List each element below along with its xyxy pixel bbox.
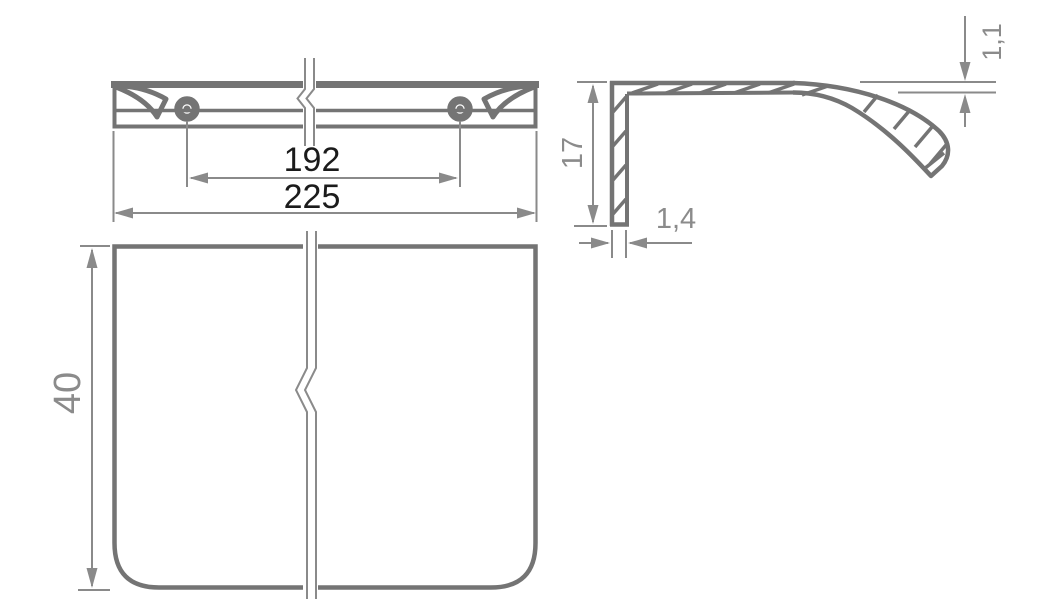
front-view: 40	[47, 231, 536, 599]
dim-label-192: 192	[284, 141, 341, 179]
top-view: 192 225	[111, 58, 539, 222]
dim-label-1-1: 1,1	[977, 23, 1007, 61]
break-line-top-view	[298, 58, 315, 146]
curled-lip	[793, 83, 948, 176]
arrowhead-up	[960, 94, 971, 113]
arrowhead-right	[591, 238, 610, 249]
arrowhead-down	[588, 205, 599, 224]
technical-drawing-page: 192 225	[0, 0, 1040, 599]
right-end-flap	[484, 86, 534, 117]
break-line-front-view	[296, 231, 316, 599]
arrowhead-up	[87, 248, 98, 268]
dimension-front-height: 40	[47, 246, 110, 590]
hatching-vertical-leg	[613, 97, 626, 214]
front-outline	[115, 247, 536, 588]
arrowhead-right	[439, 173, 458, 184]
screw-hole-right	[451, 100, 469, 118]
dimension-lip-thickness: 1,1	[860, 16, 1007, 127]
arrowhead-left	[114, 208, 133, 219]
dim-label-1-4: 1,4	[656, 203, 696, 235]
technical-drawing-canvas: 192 225	[0, 0, 1040, 599]
dimension-profile-height: 17	[557, 82, 607, 226]
arrowhead-up	[588, 84, 599, 103]
arrowhead-right	[517, 208, 536, 219]
arrowhead-left	[628, 238, 647, 249]
arrowhead-left	[189, 173, 208, 184]
dim-label-17: 17	[557, 137, 589, 169]
arrowhead-down	[87, 568, 98, 588]
side-section-view: 17 1,4 1,1	[557, 16, 1007, 258]
left-end-flap	[116, 86, 166, 117]
dim-label-40: 40	[47, 372, 89, 414]
arrowhead-down	[960, 62, 971, 81]
dim-label-225: 225	[284, 178, 341, 216]
screw-hole-left	[178, 100, 196, 118]
